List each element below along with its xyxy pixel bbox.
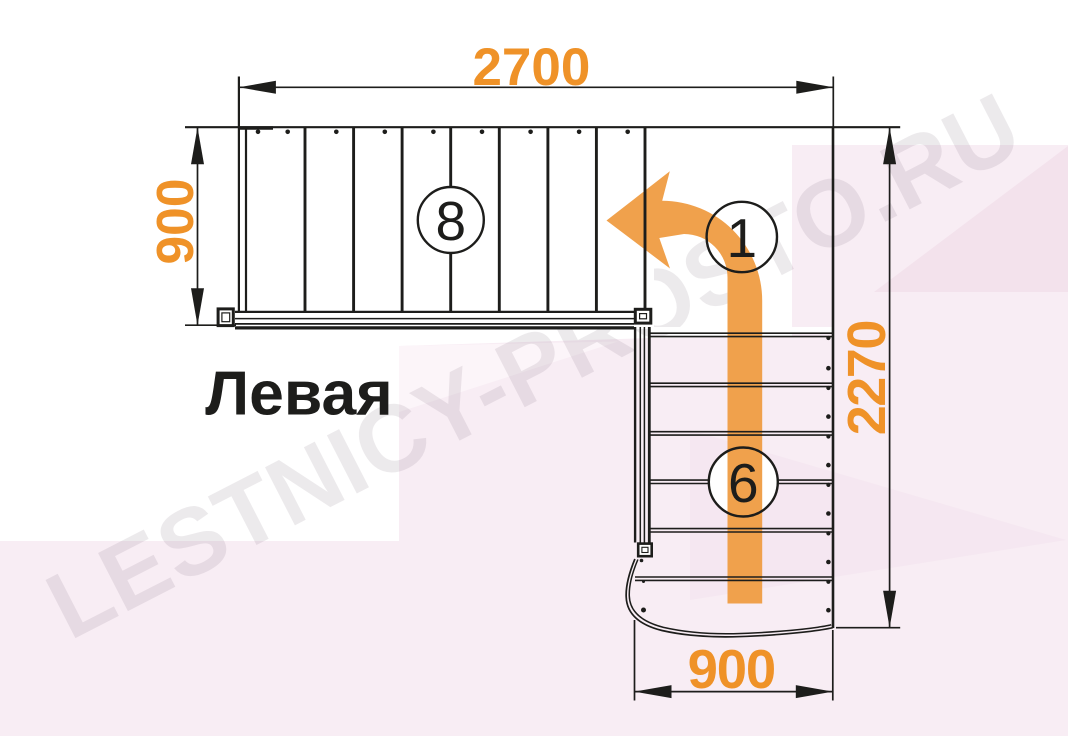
svg-text:Левая: Левая bbox=[205, 359, 392, 429]
svg-text:2700: 2700 bbox=[472, 38, 590, 97]
svg-text:1: 1 bbox=[727, 207, 758, 269]
svg-text:8: 8 bbox=[436, 190, 467, 252]
svg-text:900: 900 bbox=[688, 639, 775, 700]
svg-text:6: 6 bbox=[728, 452, 759, 514]
svg-text:900: 900 bbox=[146, 179, 204, 265]
svg-text:2270: 2270 bbox=[837, 321, 897, 435]
